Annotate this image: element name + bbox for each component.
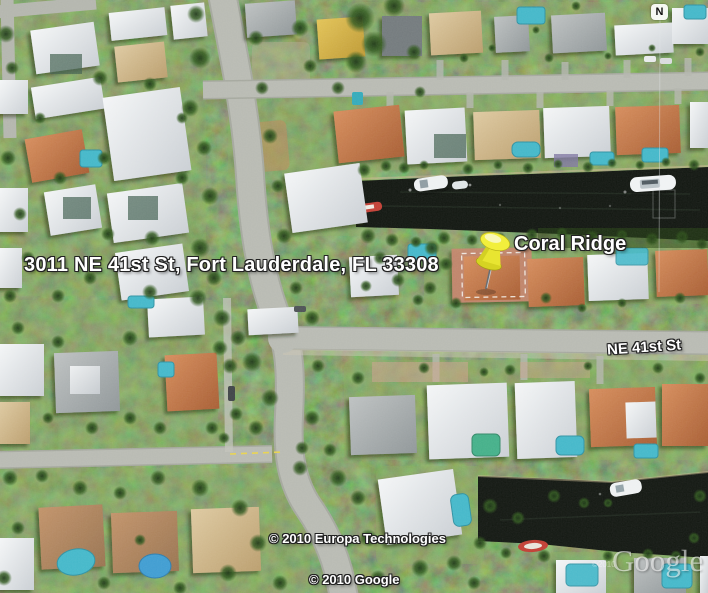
address-label[interactable]: 3011 NE 41st St, Fort Lauderdale, FL 333… bbox=[24, 254, 439, 277]
pushpin-head bbox=[473, 229, 512, 273]
north-indicator[interactable]: N bbox=[651, 4, 668, 20]
google-watermark-logo: Google bbox=[612, 543, 703, 579]
aerial-imagery bbox=[0, 0, 708, 593]
copyright-imagery: © 2010 Europa Technologies bbox=[269, 531, 446, 546]
google-earth-map-view[interactable]: 3011 NE 41st St, Fort Lauderdale, FL 333… bbox=[0, 0, 708, 593]
placemark-pushpin-icon[interactable] bbox=[458, 226, 534, 302]
copyright-google: © 2010 Google bbox=[309, 572, 400, 587]
grain-overlay bbox=[0, 0, 708, 593]
